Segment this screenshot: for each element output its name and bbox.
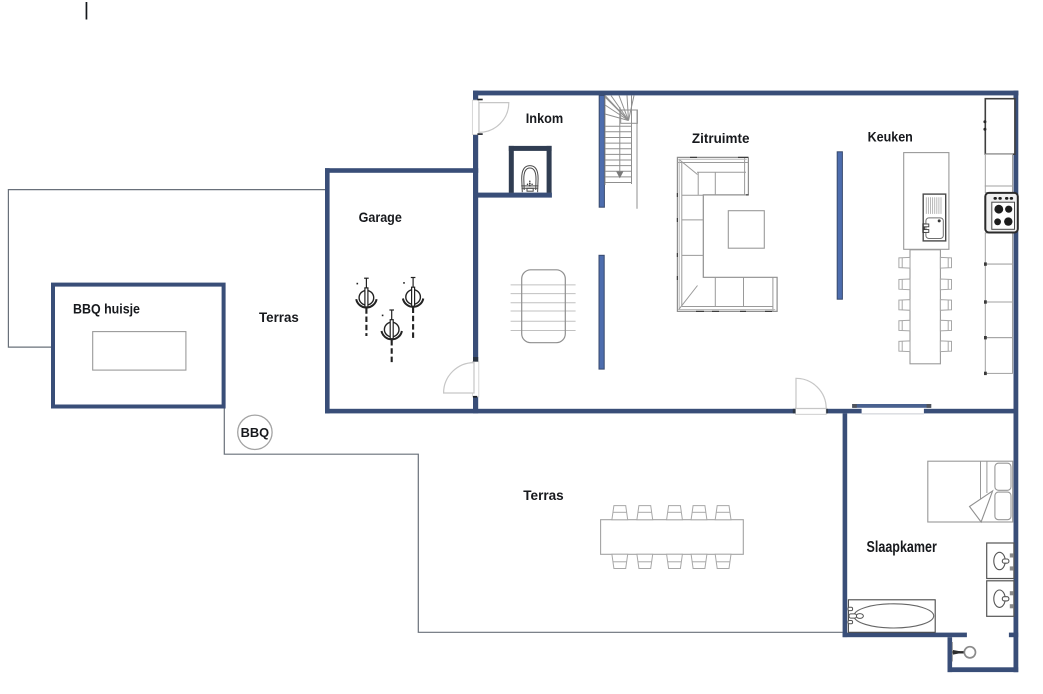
svg-text:BBQ: BBQ [241, 426, 270, 440]
svg-text:Terras: Terras [523, 488, 563, 503]
svg-text:Slaapkamer: Slaapkamer [867, 539, 937, 556]
svg-text:Inkom: Inkom [526, 111, 564, 126]
svg-text:BBQ huisje: BBQ huisje [73, 302, 140, 317]
svg-text:Keuken: Keuken [868, 129, 913, 144]
svg-text:Terras: Terras [259, 310, 299, 325]
svg-text:Zitruimte: Zitruimte [692, 131, 750, 146]
svg-text:Garage: Garage [359, 210, 402, 225]
